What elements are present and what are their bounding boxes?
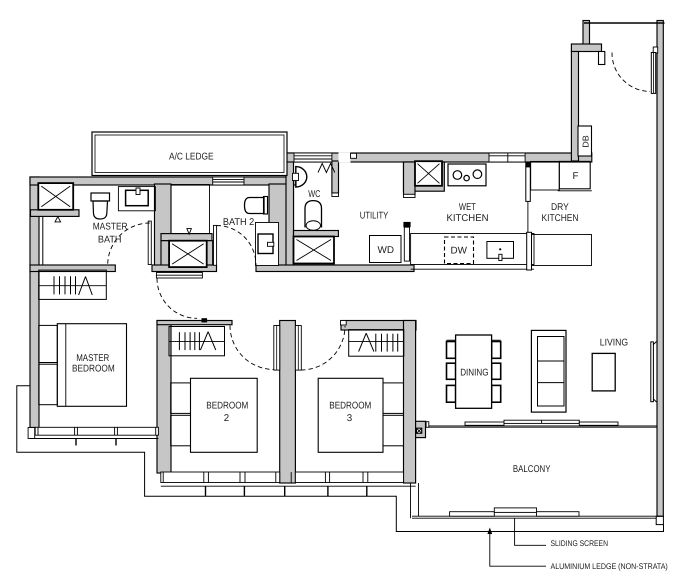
svg-text:MASTER: MASTER: [93, 222, 128, 233]
svg-text:DRY: DRY: [551, 202, 569, 213]
svg-text:KITCHEN: KITCHEN: [542, 213, 579, 224]
svg-text:WD: WD: [378, 245, 395, 256]
svg-text:F: F: [573, 171, 579, 182]
svg-text:ALUMINIUM LEDGE (NON-STRATA): ALUMINIUM LEDGE (NON-STRATA): [551, 562, 669, 571]
svg-text:BEDROOM: BEDROOM: [329, 401, 371, 412]
svg-text:A/C LEDGE: A/C LEDGE: [169, 152, 214, 163]
svg-text:KITCHEN: KITCHEN: [447, 213, 489, 224]
svg-text:LIVING: LIVING: [600, 338, 628, 349]
svg-text:WET: WET: [459, 202, 476, 213]
svg-text:DB: DB: [580, 135, 590, 148]
svg-text:BEDROOM: BEDROOM: [206, 401, 248, 412]
svg-text:DINING: DINING: [460, 367, 488, 378]
svg-text:BALCONY: BALCONY: [513, 464, 551, 475]
svg-text:DW: DW: [451, 246, 468, 257]
svg-text:2: 2: [224, 413, 229, 424]
svg-text:BATH 2: BATH 2: [223, 217, 254, 228]
svg-text:BATH: BATH: [98, 235, 122, 246]
svg-text:UTILITY: UTILITY: [360, 210, 389, 221]
svg-text:SLIDING SCREEN: SLIDING SCREEN: [551, 539, 609, 548]
svg-text:3: 3: [347, 413, 353, 424]
svg-text:WC: WC: [308, 189, 320, 200]
svg-text:BEDROOM: BEDROOM: [72, 363, 115, 374]
